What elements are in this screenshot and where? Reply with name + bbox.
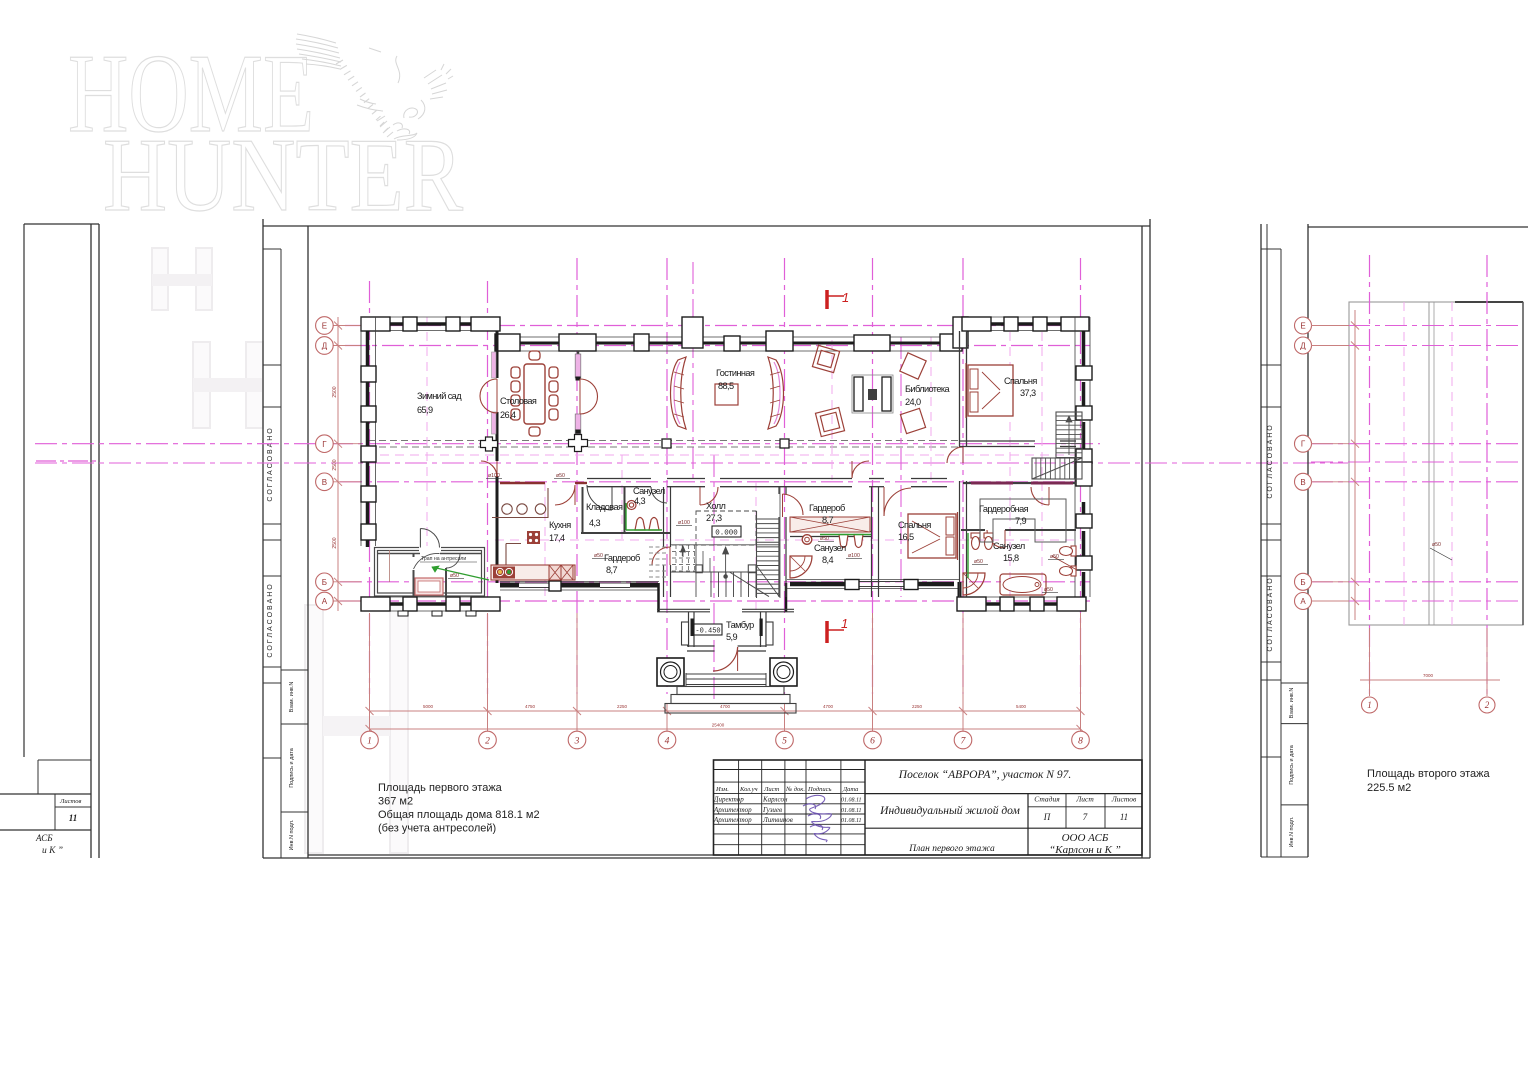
svg-text:ø50: ø50 [556,473,565,479]
svg-text:Литвинов: Литвинов [762,816,793,824]
svg-text:1: 1 [842,290,849,305]
svg-text:1: 1 [841,616,848,631]
svg-text:Гардеробная: Гардеробная [979,504,1029,514]
svg-text:Санузел: Санузел [993,541,1025,551]
svg-text:1: 1 [1367,700,1372,710]
svg-text:2500: 2500 [332,537,338,548]
svg-text:Изм.: Изм. [715,786,729,793]
svg-text:и К ”: и К ” [42,846,63,856]
svg-text:ООО АСБ: ООО АСБ [1062,832,1109,844]
svg-text:В: В [1300,478,1305,487]
svg-text:01.08.11: 01.08.11 [841,808,862,814]
svg-text:2250: 2250 [617,704,628,709]
svg-text:Холл: Холл [706,501,725,511]
svg-text:ø50: ø50 [594,553,603,559]
svg-text:Гузиев: Гузиев [762,806,782,814]
svg-text:4,3: 4,3 [634,496,645,506]
svg-text:(без учета антресолей): (без учета антресолей) [378,823,496,835]
svg-text:7000: 7000 [1423,673,1434,678]
svg-text:ø50: ø50 [1044,587,1053,593]
svg-text:6: 6 [870,736,875,746]
svg-text:8: 8 [1078,736,1083,746]
svg-text:Б: Б [322,578,327,587]
svg-text:1: 1 [367,736,372,746]
svg-text:Д: Д [322,342,328,351]
svg-text:ø50: ø50 [974,559,983,565]
svg-text:2: 2 [1485,700,1490,710]
svg-text:Подпись: Подпись [807,786,832,793]
svg-text:Общая площадь дома 818.1 м2: Общая площадь дома 818.1 м2 [378,809,540,821]
svg-text:Взам. инв.N: Взам. инв.N [1289,688,1295,719]
svg-text:26,4: 26,4 [500,410,516,420]
svg-text:Стадия: Стадия [1034,795,1060,804]
svg-text:-0.450: -0.450 [695,628,720,636]
svg-text:Площадь первого этажа: Площадь первого этажа [378,782,503,794]
svg-text:Дата: Дата [842,786,858,793]
svg-text:Кол.уч: Кол.уч [739,786,758,793]
svg-text:Санузел: Санузел [814,543,846,553]
svg-text:Спальня: Спальня [898,520,931,530]
svg-text:А: А [1300,597,1306,606]
svg-text:С О Г Л А С О В А Н О: С О Г Л А С О В А Н О [1267,578,1274,652]
svg-text:Спальня: Спальня [1004,376,1037,386]
svg-text:Директор: Директор [713,796,744,804]
svg-text:Б: Б [1300,578,1305,587]
svg-text:Е: Е [1300,322,1305,331]
svg-text:01.08.11: 01.08.11 [841,798,862,804]
svg-text:Подпись и дата: Подпись и дата [1289,744,1295,784]
svg-text:Зимний сад: Зимний сад [417,391,462,401]
svg-text:Тамбур: Тамбур [726,620,754,630]
svg-text:Поселок “АВРОРА”, участок N: Поселок “АВРОРА”, участок N 97. [898,769,1071,781]
svg-text:0.000: 0.000 [715,530,738,538]
svg-text:5: 5 [782,736,787,746]
svg-text:А: А [322,597,328,606]
svg-text:25400: 25400 [712,723,725,728]
svg-text:Карлсон: Карлсон [762,796,788,804]
svg-text:С О Г Л А С О В А Н О: С О Г Л А С О В А Н О [267,428,274,502]
svg-text:Взам. инв.N: Взам. инв.N [289,682,295,713]
svg-text:11: 11 [1120,812,1128,822]
svg-text:15,8: 15,8 [1003,553,1019,563]
svg-text:2250: 2250 [912,704,923,709]
svg-text:2500: 2500 [332,386,338,397]
svg-text:Трап на антресоли: Трап на антресоли [421,556,466,562]
svg-text:Г: Г [322,440,327,449]
svg-text:Листов: Листов [59,798,81,805]
svg-text:5400: 5400 [1016,704,1027,709]
svg-text:Инв.N подл.: Инв.N подл. [1289,816,1295,847]
svg-text:ø100: ø100 [848,553,860,559]
svg-text:225.5 м2: 225.5 м2 [1367,782,1411,794]
svg-text:ø50: ø50 [1432,542,1441,548]
svg-text:Кухня: Кухня [549,520,571,530]
svg-text:7,9: 7,9 [1015,516,1026,526]
svg-text:В: В [322,478,327,487]
svg-text:ø50: ø50 [820,536,829,542]
svg-text:Архитектор: Архитектор [713,816,752,824]
svg-text:4700: 4700 [823,704,834,709]
svg-text:2500: 2500 [332,459,338,470]
svg-text:Лист: Лист [763,786,780,793]
svg-text:Индивидуальный жилой дом: Индивидуальный жилой дом [879,804,1020,817]
svg-text:367 м2: 367 м2 [378,796,413,808]
svg-text:Архитектор: Архитектор [713,806,752,814]
svg-text:Листов: Листов [1111,795,1137,804]
svg-text:16,5: 16,5 [898,532,914,542]
svg-text:ø50: ø50 [450,573,459,579]
svg-text:Библиотека: Библиотека [905,384,950,394]
svg-text:4: 4 [665,736,670,746]
svg-text:№ док.: № док. [785,786,805,793]
svg-text:Кладовая: Кладовая [586,502,623,512]
svg-text:88,5: 88,5 [718,381,734,391]
svg-text:Г: Г [1301,440,1306,449]
svg-text:Гардероб: Гардероб [809,503,845,513]
svg-text:5,9: 5,9 [726,632,737,642]
svg-text:“Карлсон и К ”: “Карлсон и К ” [1049,844,1121,856]
svg-text:8,7: 8,7 [822,515,833,525]
svg-text:ø100: ø100 [678,520,690,526]
svg-text:С О Г Л А С О В А Н О: С О Г Л А С О В А Н О [1267,425,1274,499]
svg-text:Лист: Лист [1075,795,1094,804]
svg-text:ø100: ø100 [488,473,500,479]
svg-text:С О Г Л А С О В А Н О: С О Г Л А С О В А Н О [267,584,274,658]
svg-text:8,7: 8,7 [606,565,617,575]
svg-text:ø50: ø50 [1050,554,1059,560]
svg-text:П: П [1043,812,1051,822]
svg-text:Д: Д [1300,342,1306,351]
svg-text:Подпись и дата: Подпись и дата [289,747,295,787]
svg-text:Столовая: Столовая [500,396,537,406]
svg-text:4750: 4750 [525,704,536,709]
svg-text:24,0: 24,0 [905,397,921,407]
svg-text:План первого этажа: План первого этажа [908,844,995,854]
svg-text:Гардероб: Гардероб [604,553,640,563]
svg-text:37,3: 37,3 [1020,388,1036,398]
svg-text:Е: Е [322,322,327,331]
svg-text:7: 7 [1083,812,1088,822]
svg-text:4700: 4700 [720,704,731,709]
svg-text:01.08.11: 01.08.11 [841,818,862,824]
svg-text:2: 2 [485,736,490,746]
svg-text:11: 11 [69,813,78,823]
svg-text:АСБ: АСБ [35,833,53,843]
svg-text:Площадь второго этажа: Площадь второго этажа [1367,768,1491,780]
svg-text:4,3: 4,3 [589,518,600,528]
svg-text:Инв.N подл.: Инв.N подл. [289,819,295,850]
svg-text:Санузел: Санузел [633,486,665,496]
svg-text:17,4: 17,4 [549,533,565,543]
svg-text:27,3: 27,3 [706,513,722,523]
svg-text:5000: 5000 [423,704,434,709]
svg-text:Гостинная: Гостинная [716,368,755,378]
svg-text:3: 3 [574,736,580,746]
svg-text:65,9: 65,9 [417,405,433,415]
svg-text:8,4: 8,4 [822,555,833,565]
